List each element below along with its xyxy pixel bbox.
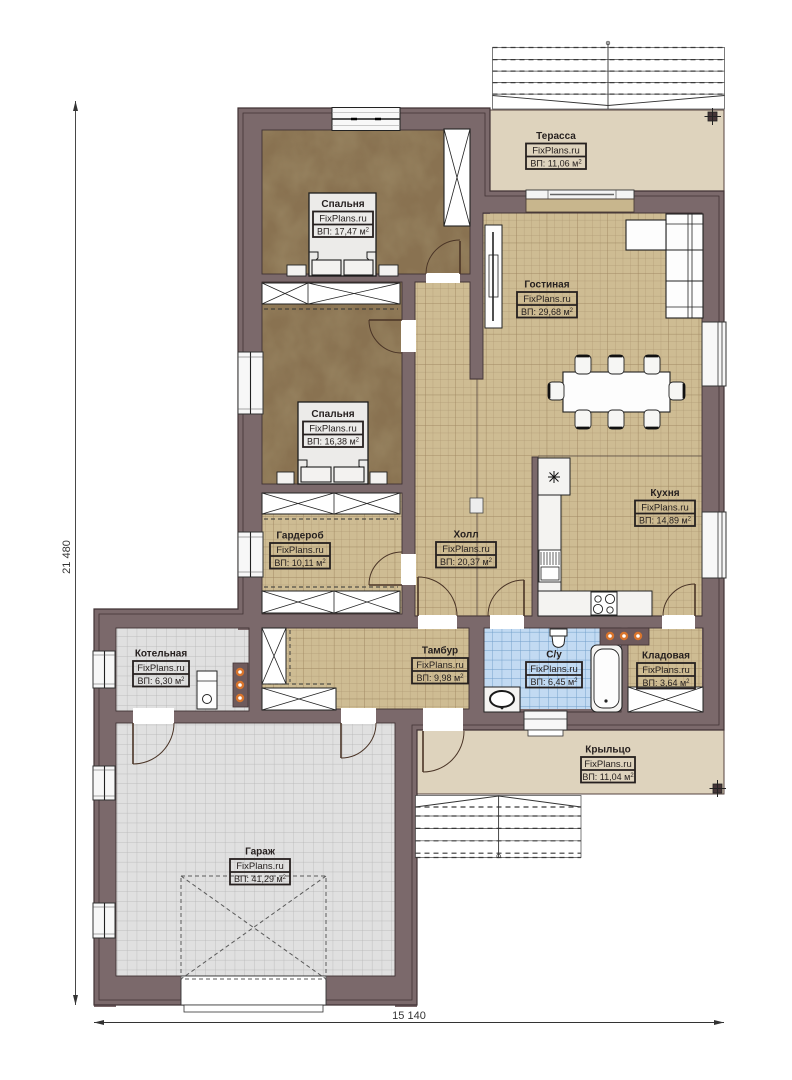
svg-text:Терасса: Терасса [536, 131, 576, 142]
svg-text:ВП: 14,89 м2: ВП: 14,89 м2 [639, 515, 692, 525]
svg-text:ВП: 6,30 м2: ВП: 6,30 м2 [137, 676, 185, 686]
svg-text:FixPlans.ru: FixPlans.ru [276, 545, 324, 556]
svg-text:Спальня: Спальня [321, 199, 364, 210]
svg-text:Кухня: Кухня [650, 488, 679, 499]
svg-text:FixPlans.ru: FixPlans.ru [319, 214, 367, 225]
svg-text:ВП: 41,29 м2: ВП: 41,29 м2 [234, 874, 287, 884]
svg-text:FixPlans.ru: FixPlans.ru [532, 146, 580, 157]
svg-text:ВП: 10,11 м2: ВП: 10,11 м2 [274, 558, 326, 568]
svg-text:ВП: 3,64 м2: ВП: 3,64 м2 [642, 678, 690, 688]
svg-text:ВП: 11,06 м2: ВП: 11,06 м2 [530, 158, 582, 168]
svg-text:15 140: 15 140 [392, 1010, 426, 1022]
svg-text:Крыльцо: Крыльцо [585, 745, 631, 756]
svg-text:FixPlans.ru: FixPlans.ru [442, 544, 490, 555]
svg-text:ВП: 20,37 м2: ВП: 20,37 м2 [440, 557, 493, 567]
svg-text:FixPlans.ru: FixPlans.ru [236, 861, 284, 872]
svg-text:Тамбур: Тамбур [422, 645, 458, 657]
svg-text:FixPlans.ru: FixPlans.ru [309, 424, 357, 435]
svg-text:FixPlans.ru: FixPlans.ru [642, 665, 690, 676]
svg-text:ВП: 29,68 м2: ВП: 29,68 м2 [521, 307, 574, 317]
svg-text:Холл: Холл [453, 530, 478, 541]
svg-text:FixPlans.ru: FixPlans.ru [641, 503, 689, 514]
svg-text:Котельная: Котельная [135, 649, 188, 660]
svg-text:FixPlans.ru: FixPlans.ru [416, 660, 464, 671]
svg-text:ВП: 16,38 м2: ВП: 16,38 м2 [307, 436, 360, 446]
svg-text:21 480: 21 480 [61, 540, 73, 574]
svg-text:ВП: 17,47 м2: ВП: 17,47 м2 [317, 226, 370, 236]
svg-text:ВП: 6,45 м2: ВП: 6,45 м2 [530, 677, 578, 687]
svg-text:Гостиная: Гостиная [524, 280, 569, 291]
svg-text:Гараж: Гараж [245, 847, 276, 858]
svg-text:FixPlans.ru: FixPlans.ru [137, 663, 185, 674]
svg-text:ВП: 9,98 м2: ВП: 9,98 м2 [416, 673, 464, 683]
svg-text:FixPlans.ru: FixPlans.ru [530, 664, 578, 675]
svg-text:Гардероб: Гардероб [276, 530, 323, 542]
svg-text:С/у: С/у [546, 650, 562, 661]
svg-text:FixPlans.ru: FixPlans.ru [584, 759, 632, 770]
svg-text:Спальня: Спальня [311, 409, 354, 420]
svg-text:Кладовая: Кладовая [642, 651, 690, 662]
svg-text:ВП: 11,04 м2: ВП: 11,04 м2 [582, 772, 634, 782]
svg-text:FixPlans.ru: FixPlans.ru [523, 294, 571, 305]
